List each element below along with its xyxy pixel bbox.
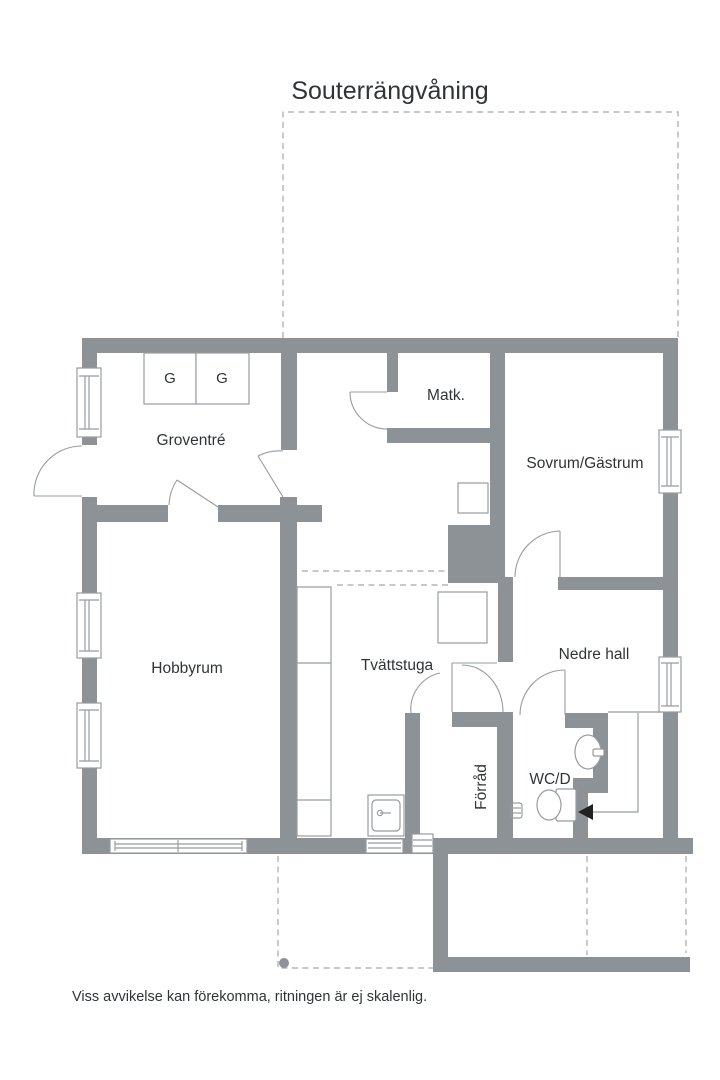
room-label-groventre: Groventré	[157, 432, 226, 449]
wall-outer-top	[82, 338, 678, 353]
washing-machine	[438, 592, 487, 643]
wall-groventre-right	[281, 353, 297, 450]
wall-wcd-jog	[573, 778, 608, 793]
window-sovrum	[659, 430, 681, 493]
wall-forrad-wcd	[497, 712, 513, 838]
upper-extent-dashed	[283, 112, 678, 338]
door-groventre-hall	[258, 451, 283, 497]
room-label-wc-d: WC/D	[529, 771, 570, 788]
door-tvattstuga-nedrehall	[452, 663, 503, 712]
wall-tvatt-nedrehall	[498, 577, 513, 662]
window-hobbyrum-2	[77, 703, 101, 768]
window-laundry-vent	[366, 839, 403, 853]
window-hobbyrum-terrace	[110, 839, 247, 853]
wall-matk-left-stub	[387, 353, 398, 392]
wall-terrace-bottom	[433, 957, 690, 972]
room-label-hobbyrum: Hobbyrum	[151, 660, 223, 677]
toilet-icon	[537, 789, 576, 821]
room-label-matk: Matk.	[427, 387, 465, 404]
wall-wcd-top-right	[565, 713, 608, 728]
floor-plan-page: Souterrängvåning	[0, 0, 720, 1080]
page-title: Souterrängvåning	[291, 77, 488, 105]
wall-terrace-left	[433, 854, 448, 972]
wardrobe-label-1: G	[164, 370, 176, 387]
room-label-tvattstuga: Tvättstuga	[361, 657, 434, 674]
door-forrad	[411, 673, 440, 713]
door-groventre-hobbyrum	[169, 480, 218, 507]
wall-groventre-hobby-left	[97, 505, 168, 522]
door-wcd	[520, 670, 565, 715]
wall-sovrum-bottom	[558, 577, 663, 590]
laundry-cabinet	[297, 587, 331, 836]
room-label-nedre-hall: Nedre hall	[559, 646, 630, 663]
window-groventre	[77, 368, 101, 437]
window-nedre-hall	[659, 657, 681, 712]
wall-outer-right	[663, 338, 678, 854]
window-bottom-small	[412, 834, 433, 853]
wall-forrad-left	[405, 713, 420, 838]
wall-chimney-block	[448, 525, 505, 583]
vent-shaft-box	[458, 483, 488, 513]
wall-matk-sovrum	[490, 353, 505, 525]
wall-groventre-hobby-right	[218, 505, 322, 522]
window-hobbyrum-1	[77, 593, 101, 658]
wall-matk-bottom	[387, 428, 505, 443]
upper-extent-outline	[283, 112, 678, 338]
floor-plan: Souterrängvåning	[0, 0, 720, 1080]
wall-hobby-tvatt	[280, 497, 297, 838]
laundry-sink	[368, 795, 404, 836]
disclaimer-text: Viss avvikelse kan förekomma, ritningen …	[72, 989, 427, 1005]
room-label-forrad: Förråd	[473, 764, 490, 810]
fixtures	[144, 353, 604, 836]
entrance-opening	[81, 445, 98, 497]
door-entrance	[34, 446, 82, 496]
room-label-sovrum-gastrum: Sovrum/Gästrum	[526, 455, 643, 472]
lower-extent-left	[278, 856, 433, 968]
door-matk	[350, 392, 387, 429]
door-sovrum	[515, 531, 560, 577]
extent-marker-dot	[279, 958, 289, 968]
wardrobe-label-2: G	[216, 370, 228, 387]
